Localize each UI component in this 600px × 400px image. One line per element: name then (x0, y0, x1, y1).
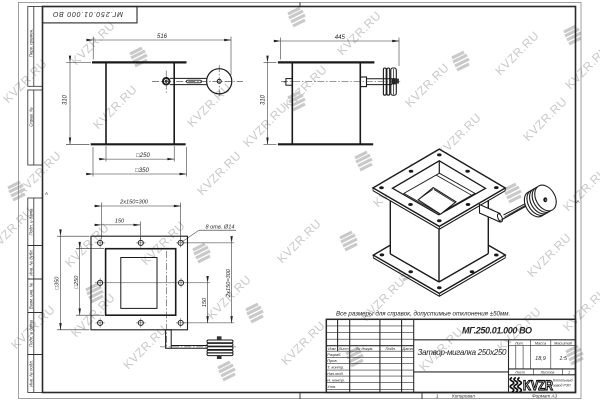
svg-text:№ докум.: № докум. (356, 346, 373, 351)
svg-text:Подп. и дата: Подп. и дата (29, 319, 34, 347)
svg-text:KVZR.RU: KVZR.RU (274, 216, 324, 266)
svg-text:завод РЗП: завод РЗП (552, 384, 571, 388)
svg-text:Затвор-мигалка 250х250: Затвор-мигалка 250х250 (418, 348, 508, 357)
svg-text:Н. контр.: Н. контр. (327, 377, 345, 382)
svg-text:KVZR.RU: KVZR.RU (62, 220, 112, 270)
svg-text:KVZR.RU: KVZR.RU (560, 284, 600, 334)
svg-text:А: А (45, 191, 48, 196)
svg-text:1: 1 (436, 394, 439, 399)
svg-text:1: 1 (568, 371, 570, 375)
svg-text:Справ. №: Справ. № (29, 107, 34, 127)
svg-text:KVZR.RU: KVZR.RU (520, 94, 570, 144)
svg-text:□250: □250 (136, 153, 150, 159)
svg-text:Листов: Листов (540, 371, 555, 375)
svg-text:Взам. инв. №: Взам. инв. № (29, 282, 34, 309)
svg-text:Утв.: Утв. (327, 384, 336, 389)
svg-text:2х150=300: 2х150=300 (119, 200, 149, 206)
svg-text:KVZR.RU: KVZR.RU (194, 148, 244, 198)
svg-text:KVZR.RU: KVZR.RU (492, 28, 542, 78)
svg-text:KVZR.RU: KVZR.RU (560, 164, 600, 214)
svg-text:Все размеры для справок, допус: Все размеры для справок, допустимые откл… (336, 311, 510, 318)
svg-text:□350: □350 (135, 168, 149, 174)
svg-text:Пров.: Пров. (327, 358, 337, 363)
svg-text:KVZR.RU: KVZR.RU (402, 60, 452, 110)
svg-text:Разраб.: Разраб. (327, 352, 341, 357)
svg-text:KVZR.RU: KVZR.RU (524, 230, 574, 280)
svg-text:Инв. № подл.: Инв. № подл. (29, 360, 34, 387)
svg-text:KVZR.RU: KVZR.RU (184, 80, 234, 130)
svg-text:Подп. и дата: Подп. и дата (29, 208, 34, 236)
svg-text:KVZR.RU: KVZR.RU (278, 318, 328, 368)
svg-text:8 отв. Ø14: 8 отв. Ø14 (205, 224, 234, 230)
svg-text:МГ.250.01.000 ВО: МГ.250.01.000 ВО (52, 10, 123, 17)
svg-text:Масштаб: Масштаб (554, 341, 573, 345)
svg-text:2х150=300: 2х150=300 (226, 268, 232, 298)
svg-text:310: 310 (63, 94, 69, 105)
svg-text:1:5: 1:5 (559, 356, 568, 362)
svg-text:310: 310 (261, 94, 267, 105)
svg-text:Формат А3: Формат А3 (532, 394, 558, 399)
svg-text:18,9: 18,9 (535, 356, 546, 362)
svg-text:Подп.: Подп. (386, 346, 396, 351)
svg-text:Копировал: Копировал (452, 394, 475, 399)
svg-text:KVZR.RU: KVZR.RU (90, 82, 140, 132)
svg-text:KVZR: KVZR (523, 378, 553, 393)
svg-text:Котельный: Котельный (553, 379, 573, 383)
svg-text:□350: □350 (55, 276, 61, 290)
svg-text:516: 516 (157, 34, 168, 40)
svg-text:А: А (577, 199, 580, 204)
svg-text:KVZR.RU: KVZR.RU (334, 8, 384, 58)
svg-text:Масса: Масса (535, 341, 546, 345)
svg-text:Т. контр.: Т. контр. (327, 365, 344, 370)
svg-text:МГ.250.01.000 ВО: МГ.250.01.000 ВО (462, 326, 532, 336)
svg-text:445: 445 (335, 35, 346, 41)
svg-text:Лист: Лист (514, 371, 525, 375)
svg-text:150: 150 (115, 218, 125, 224)
svg-text:Инв. № дубл.: Инв. № дубл. (29, 249, 34, 275)
svg-text:KVZR.RU: KVZR.RU (240, 100, 290, 150)
svg-text:150: 150 (202, 297, 208, 307)
svg-text:Перв. примен.: Перв. примен. (29, 29, 34, 58)
svg-text:Дата: Дата (401, 346, 413, 351)
svg-text:Изм: Изм (328, 346, 336, 351)
svg-text:□250: □250 (74, 275, 80, 289)
svg-text:Лит.: Лит. (514, 341, 524, 345)
svg-text:Лист: Лист (338, 346, 350, 351)
svg-text:Нач.отд.: Нач.отд. (327, 371, 343, 376)
